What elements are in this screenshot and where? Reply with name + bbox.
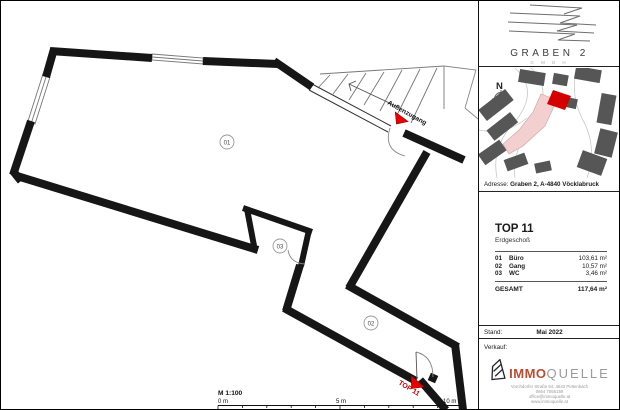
agency-block: IMMOQUELLE Vorchdorfer Straße 64, 4643 P… [479,357,620,404]
svg-text:M 1:100: M 1:100 [218,390,243,397]
address-bar: Adresse: Graben 2, A-4840 Vöcklabruck [479,178,620,192]
door-arcs [288,128,433,379]
exterior-stairs [318,66,444,123]
room-label-01: 01 [220,135,234,149]
room-area: 10,57 m² [582,263,607,271]
address-label: Adresse: [484,181,508,188]
wc-walls [243,208,312,266]
room-table: 01 Büro 103,61 m² 02 Gang 10,57 m² 03 WC… [495,251,607,278]
svg-text:N: N [496,81,503,92]
svg-text:10 m: 10 m [443,399,456,405]
svg-text:0 m: 0 m [218,399,228,405]
aussenzugang-annotation: Außenzugang [381,100,428,137]
table-row: 02 Gang 10,57 m² [495,263,607,271]
landing-railing [444,66,478,119]
room-no: 03 [495,270,505,278]
graben2-logo-icon [500,2,600,42]
room-label-03: 03 [273,239,287,253]
room-area: 3,46 m² [586,270,607,278]
svg-text:03: 03 [277,244,284,250]
logo-subtitle: G M B H [479,60,620,65]
svg-text:5 m: 5 m [336,399,346,405]
svg-text:01: 01 [224,140,231,146]
table-row: 03 WC 3,46 m² [495,270,607,278]
understairs-wall [309,84,391,132]
agency-brand: IMMOQUELLE [479,357,620,381]
unit-title: TOP 11 [495,223,607,235]
unit-floor: Erdgeschoß [495,237,607,244]
stand-value: Mai 2022 [479,326,620,339]
info-sidebar: GRABEN 2 G M B H [478,0,620,410]
svg-text:02: 02 [368,321,375,327]
address-value: Graben 2, A-4840 Vöcklabruck [510,181,599,188]
room-name: Büro [509,255,524,263]
stand-row: Stand: Mai 2022 [479,326,620,339]
scale-bar: M 1:100 0 m 5 m 10 m [218,390,462,410]
floorplan-drawing: 01 03 02 Außenzugang TOP 11 M 1:100 0 m … [0,0,478,410]
graben2-logo-block: GRABEN 2 G M B H [479,0,620,67]
agency-contact: Vorchdorfer Straße 64, 4643 Pettenbach 0… [479,384,620,404]
window-left [28,74,50,124]
total-row: GESAMT 117,64 m² [495,281,607,293]
brand-quelle: QUELLE [547,366,610,381]
agency-web: www.immoquelle.at [479,399,620,404]
room-name: WC [509,270,520,278]
room-label-02: 02 [364,316,378,330]
room-name: Gang [509,263,525,271]
site-map: N [479,68,620,178]
unit-summary: TOP 11 Erdgeschoß 01 Büro 103,61 m² 02 G… [479,192,620,326]
room-no: 02 [495,263,505,271]
table-row: 01 Büro 103,61 m² [495,255,607,263]
room-no: 01 [495,255,505,263]
total-label: GESAMT [495,286,523,293]
logo-title: GRABEN 2 [479,48,620,59]
immoquelle-house-icon [489,359,506,381]
room-area: 103,61 m² [579,255,607,263]
window-top [152,54,203,64]
verkauf-label: Verkauf: [479,344,620,351]
svg-text:Außenzugang: Außenzugang [386,100,428,127]
brand-immo: IMMO [509,366,546,381]
total-area: 117,64 m² [578,286,607,293]
